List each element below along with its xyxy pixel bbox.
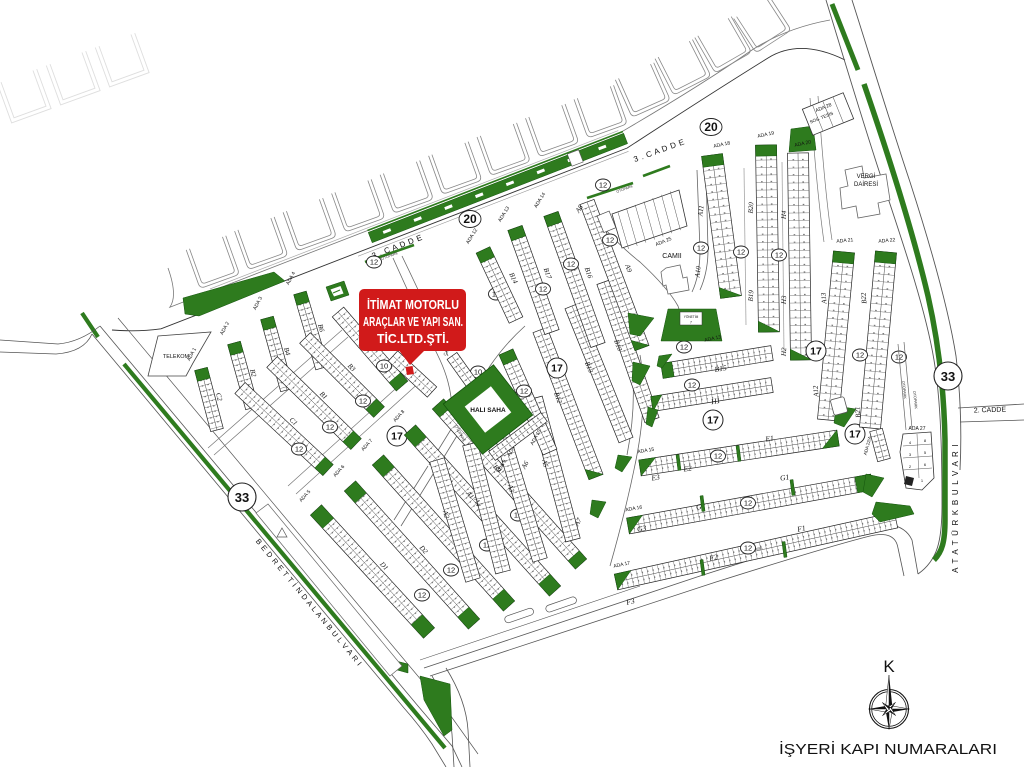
svg-text:2. CADDE: 2. CADDE (974, 406, 1007, 414)
svg-text:ADA 27: ADA 27 (909, 426, 926, 432)
svg-text:17: 17 (810, 346, 822, 358)
svg-text:B15: B15 (714, 363, 728, 374)
svg-text:12: 12 (775, 251, 783, 260)
svg-text:33: 33 (941, 369, 955, 384)
svg-text:E2: E2 (682, 463, 693, 473)
svg-text:A T A T Ü R K B U L V A R I: A T A T Ü R K B U L V A R I (951, 443, 960, 573)
svg-text:12: 12 (744, 544, 752, 553)
svg-text:20: 20 (704, 120, 718, 134)
svg-text:YÖNETİM: YÖNETİM (684, 314, 699, 319)
svg-text:F1: F1 (795, 523, 806, 534)
svg-text:DAİRESİ: DAİRESİ (854, 181, 878, 188)
svg-text:12: 12 (567, 260, 575, 269)
svg-text:12: 12 (737, 248, 745, 257)
svg-text:H3: H3 (780, 295, 789, 306)
svg-text:G1: G1 (779, 472, 790, 482)
svg-text:TİC.LTD.ŞTİ.: TİC.LTD.ŞTİ. (377, 331, 449, 346)
svg-text:H2: H2 (780, 347, 789, 358)
svg-text:12: 12 (688, 381, 696, 390)
svg-text:K: K (883, 657, 895, 676)
svg-text:12: 12 (539, 285, 547, 294)
svg-text:12: 12 (856, 351, 864, 360)
svg-text:H1: H1 (709, 396, 720, 406)
svg-text:17: 17 (707, 415, 719, 427)
svg-text:12: 12 (295, 445, 303, 454)
svg-text:33: 33 (235, 490, 249, 505)
svg-text:12: 12 (447, 566, 455, 575)
svg-text:A11: A11 (696, 205, 705, 218)
svg-text:ARAÇLAR VE YAPI SAN.: ARAÇLAR VE YAPI SAN. (363, 315, 463, 329)
svg-text:B20: B20 (747, 201, 756, 213)
svg-text:7: 7 (690, 321, 692, 325)
svg-text:İŞYERİ KAPI NUMARALARI: İŞYERİ KAPI NUMARALARI (779, 740, 997, 758)
svg-text:20: 20 (463, 212, 477, 226)
svg-text:12: 12 (520, 387, 528, 396)
svg-text:12: 12 (680, 343, 688, 352)
svg-text:12: 12 (744, 499, 752, 508)
svg-text:G3: G3 (636, 523, 647, 533)
svg-text:12: 12 (370, 258, 378, 267)
svg-text:12: 12 (697, 244, 705, 253)
svg-text:12: 12 (714, 452, 722, 461)
svg-text:17: 17 (849, 429, 861, 441)
svg-text:10: 10 (380, 362, 388, 371)
svg-text:12: 12 (599, 181, 607, 190)
svg-text:B19: B19 (747, 289, 756, 301)
svg-text:12: 12 (418, 591, 426, 600)
svg-text:HALI SAHA: HALI SAHA (470, 407, 506, 414)
svg-text:17: 17 (391, 431, 403, 443)
svg-text:E3: E3 (650, 472, 661, 482)
svg-text:VERGİ: VERGİ (857, 173, 876, 180)
svg-text:E1: E1 (764, 433, 775, 443)
svg-text:A13: A13 (819, 292, 828, 305)
svg-text:B22: B22 (859, 292, 868, 304)
svg-text:12: 12 (359, 397, 367, 406)
svg-text:İTİMAT MOTORLU: İTİMAT MOTORLU (367, 297, 459, 312)
svg-text:CAMII: CAMII (662, 253, 682, 260)
svg-text:B21: B21 (854, 406, 863, 418)
svg-text:17: 17 (551, 363, 563, 375)
svg-text:A10: A10 (693, 265, 702, 279)
svg-text:H4: H4 (780, 210, 789, 221)
svg-text:12: 12 (326, 423, 334, 432)
svg-text:A12: A12 (811, 385, 820, 398)
svg-text:12: 12 (606, 236, 614, 245)
